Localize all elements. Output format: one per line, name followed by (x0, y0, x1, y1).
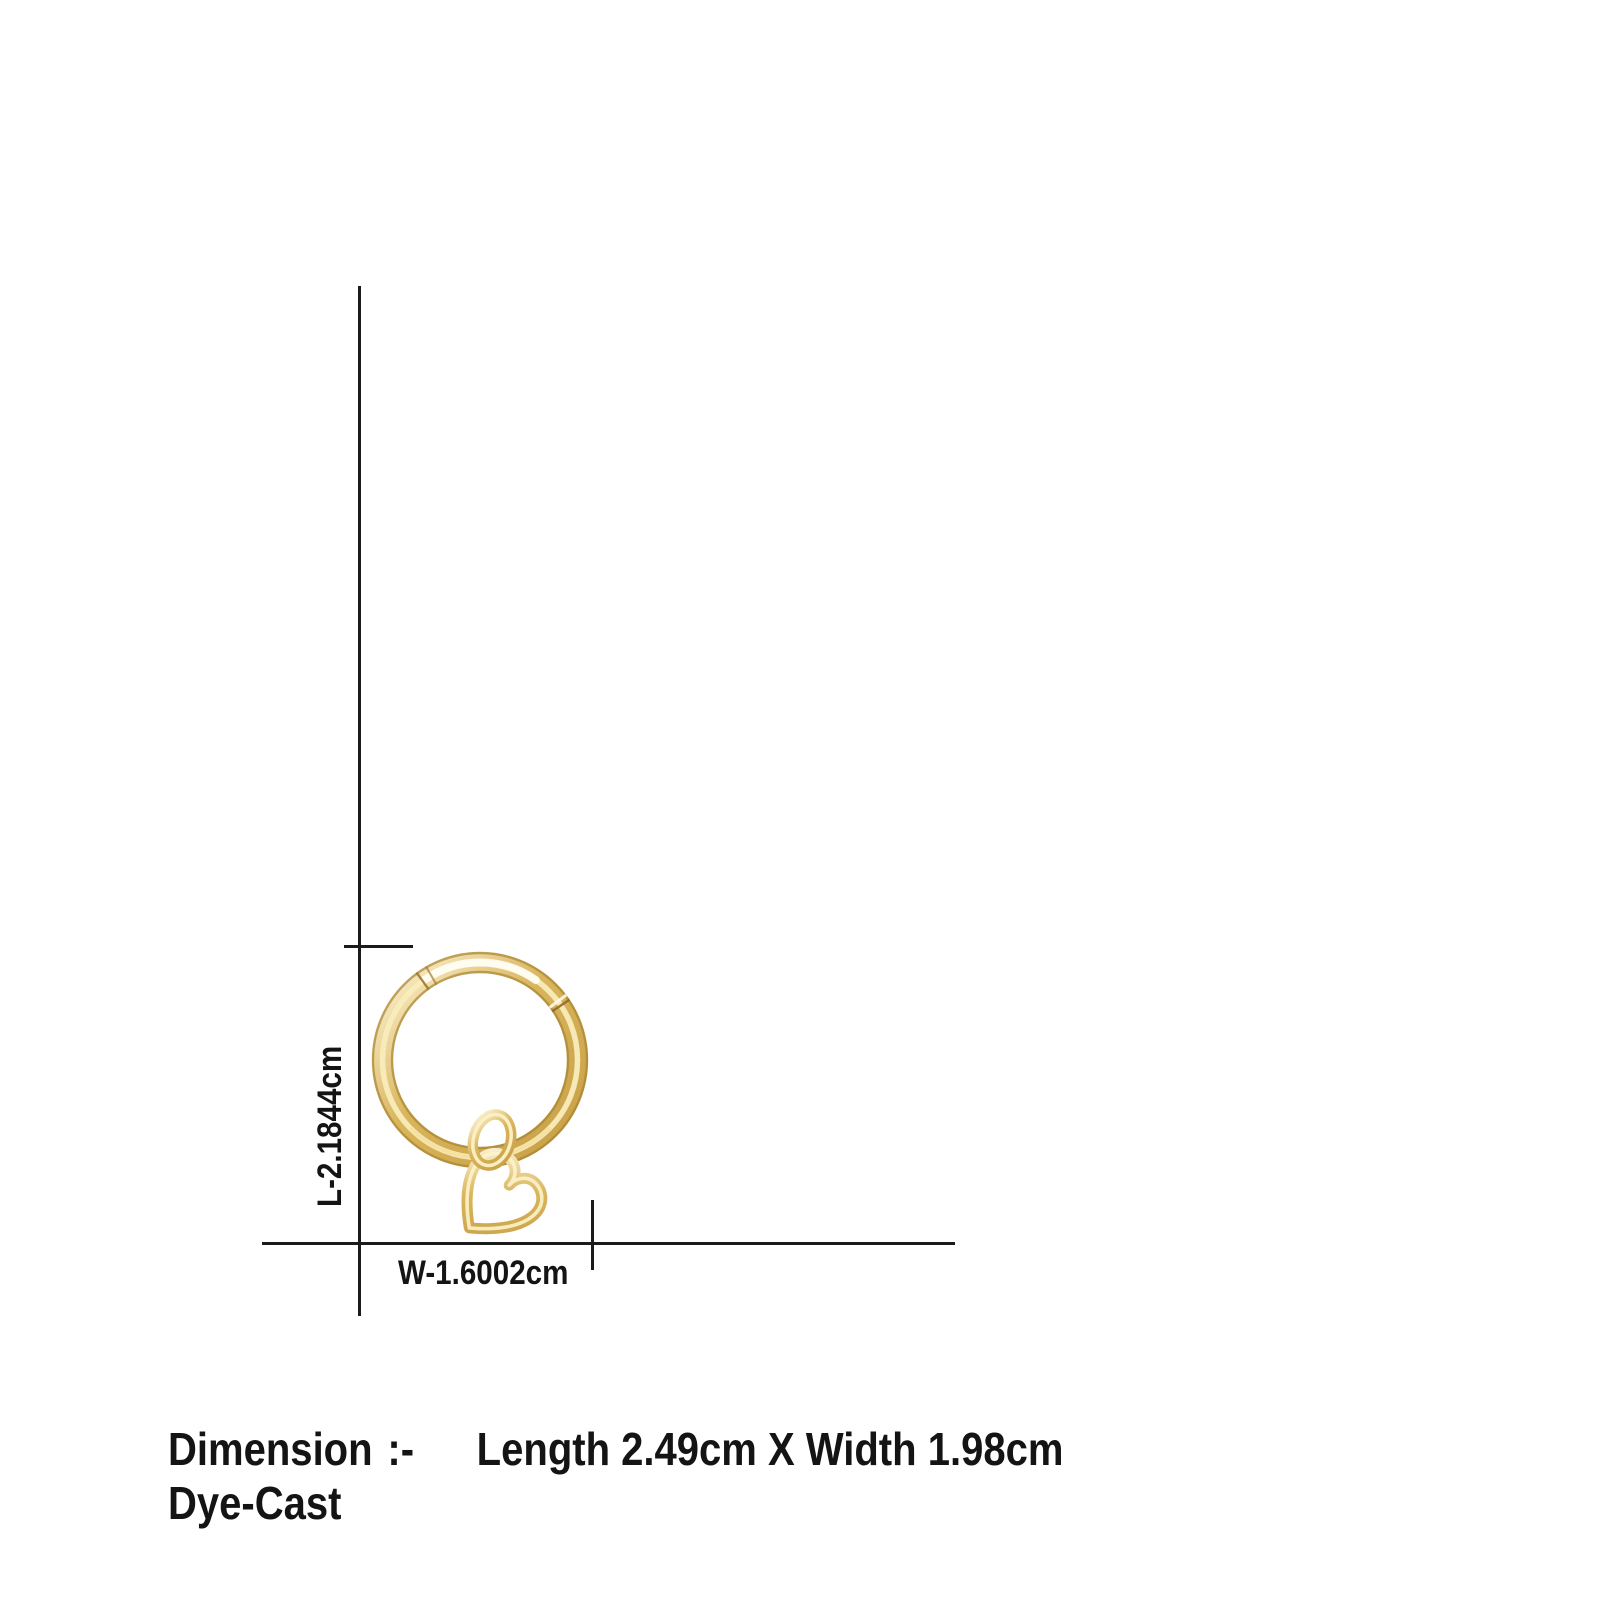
dimension-separator: :- (387, 1426, 414, 1472)
dimension-text-row: Dimension:-Length 2.49cm X Width 1.98cm (168, 1426, 1063, 1472)
dimension-heading: Dimension (168, 1423, 373, 1475)
dimension-value: Length 2.49cm X Width 1.98cm (477, 1426, 1064, 1472)
hoop-ring (373, 953, 587, 1167)
material-label: Dye-Cast (168, 1480, 341, 1526)
product-dimension-diagram: L-2.1844cm W-1.6002cm (0, 0, 1600, 1600)
gold-hoop-earring-with-heart-charm-image (340, 925, 640, 1255)
width-dimension-label: W-1.6002cm (398, 1256, 568, 1290)
